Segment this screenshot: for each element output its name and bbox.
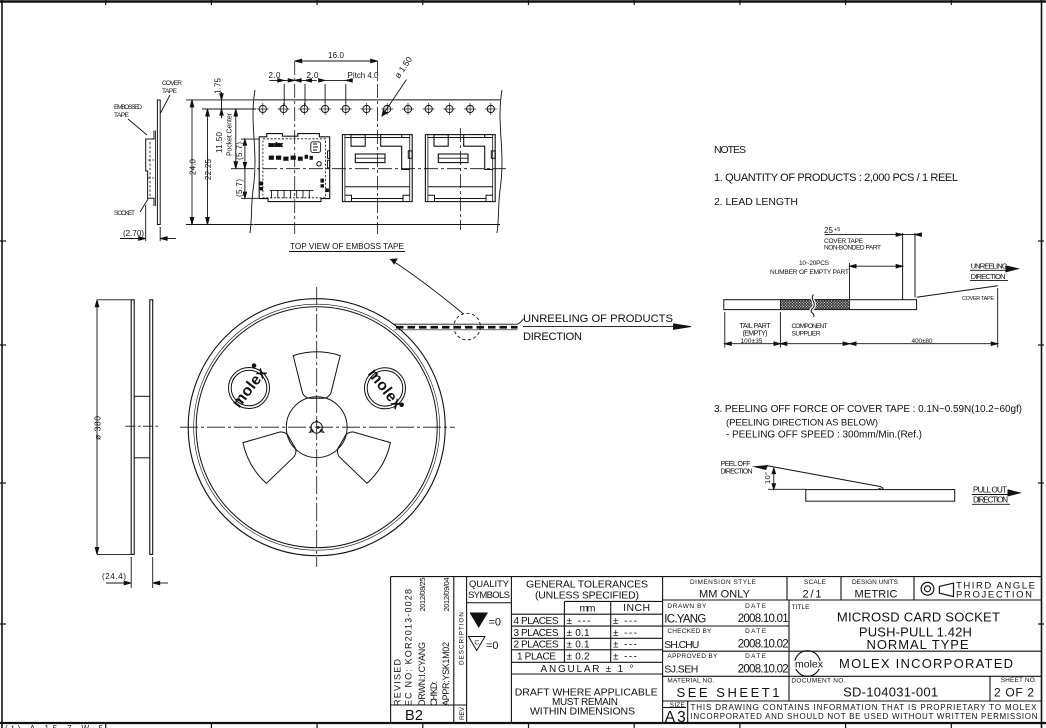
svg-text:± ---: ± --- bbox=[613, 628, 637, 639]
svg-text:24.0: 24.0 bbox=[189, 158, 198, 175]
svg-text:APPROVED BY: APPROVED BY bbox=[667, 653, 718, 660]
svg-text:molex: molex bbox=[269, 143, 284, 149]
svg-text:SCALE: SCALE bbox=[804, 579, 827, 586]
svg-text:EC NO: KOR2013-0028: EC NO: KOR2013-0028 bbox=[404, 589, 414, 706]
svg-text:B2: B2 bbox=[405, 708, 423, 724]
svg-text:METRIC: METRIC bbox=[855, 589, 898, 601]
svg-text:400±80: 400±80 bbox=[912, 338, 933, 345]
svg-text:C: C bbox=[474, 640, 479, 647]
svg-text:UNREELING OF PRODUCTS: UNREELING OF PRODUCTS bbox=[523, 313, 673, 325]
svg-text:2 OF 2: 2 OF 2 bbox=[994, 686, 1034, 700]
svg-text:TAPE: TAPE bbox=[114, 112, 130, 119]
svg-text:2008.10.02: 2008.10.02 bbox=[738, 664, 789, 676]
svg-text:SHEET NO.: SHEET NO. bbox=[1001, 677, 1037, 684]
svg-text:10°: 10° bbox=[763, 472, 772, 484]
svg-text:EMBOSSED: EMBOSSED bbox=[114, 104, 142, 111]
svg-text:TAIL PART: TAIL PART bbox=[740, 323, 772, 330]
svg-text:WITHIN DIMENSIONS: WITHIN DIMENSIONS bbox=[530, 706, 635, 718]
svg-text:=0: =0 bbox=[486, 640, 499, 652]
svg-text:(PEELING DIRECTION AS BELOW): (PEELING DIRECTION AS BELOW) bbox=[726, 418, 878, 429]
svg-text:(5.7): (5.7) bbox=[235, 142, 244, 160]
svg-text:± ---: ± --- bbox=[613, 616, 637, 627]
svg-text:MOLEX INCORPORATED: MOLEX INCORPORATED bbox=[839, 656, 1013, 671]
svg-text:DIRECTION: DIRECTION bbox=[721, 469, 753, 476]
svg-text:(2.70): (2.70) bbox=[123, 229, 144, 238]
svg-text:± ---: ± --- bbox=[567, 616, 591, 627]
svg-text:16.0: 16.0 bbox=[328, 51, 345, 60]
svg-text:2/1: 2/1 bbox=[803, 589, 822, 601]
svg-text:2012/08/25: 2012/08/25 bbox=[418, 578, 427, 612]
svg-text:2.0: 2.0 bbox=[269, 71, 282, 80]
svg-text:SUPPLIER: SUPPLIER bbox=[792, 331, 821, 338]
svg-text:NOTES: NOTES bbox=[714, 144, 746, 156]
svg-text:DATE: DATE bbox=[745, 628, 767, 635]
svg-text:SOCKET: SOCKET bbox=[114, 210, 135, 217]
svg-text:=0: =0 bbox=[489, 617, 502, 629]
svg-text:PULL OUT: PULL OUT bbox=[973, 486, 1007, 495]
svg-text:Pocket Center: Pocket Center bbox=[227, 112, 234, 156]
svg-text:SH.CHU: SH.CHU bbox=[664, 639, 699, 651]
svg-text:UNREELING: UNREELING bbox=[971, 262, 1008, 271]
svg-text:NORMAL TYPE: NORMAL TYPE bbox=[867, 637, 969, 652]
svg-text:DESCRIPTION: DESCRIPTION bbox=[459, 612, 466, 665]
svg-text:2 PLACES: 2 PLACES bbox=[514, 640, 559, 651]
svg-text:DIRECTION: DIRECTION bbox=[973, 496, 1008, 505]
svg-text:11.50: 11.50 bbox=[215, 131, 224, 153]
svg-text:CHECKED BY: CHECKED BY bbox=[667, 628, 712, 635]
svg-text:TOP VIEW OF EMBOSS TAPE: TOP VIEW OF EMBOSS TAPE bbox=[290, 242, 405, 251]
svg-text:IC.YANG: IC.YANG bbox=[664, 613, 706, 625]
svg-text:COMPONENT: COMPONENT bbox=[792, 323, 828, 330]
svg-text:MM ONLY: MM ONLY bbox=[699, 589, 751, 601]
svg-text:± 0.1: ± 0.1 bbox=[567, 628, 590, 639]
svg-text:1. QUANTITY OF PRODUCTS : 2,0: 1. QUANTITY OF PRODUCTS : 2,000 PCS / 1 … bbox=[714, 172, 958, 184]
svg-text:3 PLACES: 3 PLACES bbox=[514, 628, 559, 639]
svg-text:25: 25 bbox=[824, 226, 833, 235]
svg-text:DIRECTION: DIRECTION bbox=[523, 331, 582, 343]
svg-text:22.25: 22.25 bbox=[204, 158, 213, 180]
svg-text:mm: mm bbox=[580, 603, 596, 615]
svg-text:10~20PCS: 10~20PCS bbox=[799, 260, 830, 267]
svg-text:(UNLESS SPECIFIED): (UNLESS SPECIFIED) bbox=[535, 590, 639, 602]
svg-text:TITLE: TITLE bbox=[792, 604, 811, 611]
svg-text:ø 380: ø 380 bbox=[93, 416, 103, 440]
svg-text:DIMENSION STYLE: DIMENSION STYLE bbox=[690, 579, 757, 586]
svg-text:2.0: 2.0 bbox=[307, 71, 320, 80]
svg-text:DIRECTION: DIRECTION bbox=[971, 272, 1006, 281]
svg-text:DESIGN UNITS: DESIGN UNITS bbox=[852, 579, 899, 586]
svg-text:1.75: 1.75 bbox=[214, 77, 223, 94]
svg-text:2008.10.02: 2008.10.02 bbox=[738, 639, 789, 651]
svg-text:DRAWN BY: DRAWN BY bbox=[667, 603, 707, 610]
svg-text:SJ.SEH: SJ.SEH bbox=[664, 664, 698, 676]
svg-text:- PEELING OFF SPEED : 300mm/Mi: - PEELING OFF SPEED : 300mm/Min.(Ref.) bbox=[726, 430, 922, 441]
svg-text:THIS DRAWING CONTAINS INFORMAT: THIS DRAWING CONTAINS INFORMATION THAT I… bbox=[691, 703, 1038, 712]
svg-text:ANGULAR ± 1 °: ANGULAR ± 1 ° bbox=[541, 664, 634, 675]
svg-text:COVER TAPE: COVER TAPE bbox=[962, 296, 994, 302]
svg-text:DATE: DATE bbox=[745, 653, 767, 660]
svg-text:± ---: ± --- bbox=[613, 652, 637, 663]
svg-text:1 PLACE: 1 PLACE bbox=[517, 652, 556, 663]
svg-text:INCH: INCH bbox=[623, 602, 650, 614]
svg-text:+5: +5 bbox=[834, 227, 840, 233]
svg-text:ø 1.50: ø 1.50 bbox=[392, 54, 414, 80]
svg-text:DRWN:I.CYANG: DRWN:I.CYANG bbox=[417, 642, 427, 706]
svg-text:DOCUMENT NO.: DOCUMENT NO. bbox=[791, 678, 845, 685]
svg-text:MATERIAL NO.: MATERIAL NO. bbox=[667, 677, 714, 684]
svg-text:NUMBER OF EMPTY PART: NUMBER OF EMPTY PART bbox=[770, 269, 849, 276]
svg-text:SYMBOLS: SYMBOLS bbox=[468, 590, 510, 601]
svg-text:CH'KD:: CH'KD: bbox=[429, 681, 439, 706]
svg-text:± ---: ± --- bbox=[613, 640, 637, 651]
svg-text:2012/09/04: 2012/09/04 bbox=[442, 578, 451, 612]
svg-text:(24.4): (24.4) bbox=[102, 572, 126, 581]
svg-text:molex: molex bbox=[229, 364, 271, 411]
svg-text:NON-BONDED PART: NON-BONDED PART bbox=[824, 245, 881, 252]
svg-text:MICROSD CARD SOCKET: MICROSD CARD SOCKET bbox=[837, 610, 1000, 625]
svg-text:4 PLACES: 4 PLACES bbox=[514, 616, 559, 627]
svg-text:(5.7): (5.7) bbox=[235, 179, 244, 197]
svg-text:± 0.1: ± 0.1 bbox=[567, 640, 590, 651]
svg-text:2. LEAD LENGTH: 2. LEAD LENGTH bbox=[714, 196, 798, 208]
svg-text:(EMPTY): (EMPTY) bbox=[743, 331, 768, 338]
svg-text:REV: REV bbox=[459, 706, 466, 720]
svg-text:molex: molex bbox=[795, 659, 824, 671]
svg-text:± 0.2: ± 0.2 bbox=[567, 652, 590, 663]
svg-text:TAPE: TAPE bbox=[162, 88, 178, 95]
svg-text:Pitch 4.0: Pitch 4.0 bbox=[348, 71, 380, 80]
svg-text:QUALITY: QUALITY bbox=[469, 579, 510, 590]
svg-text:SEE SHEET1: SEE SHEET1 bbox=[677, 685, 780, 700]
svg-text:SIZE: SIZE bbox=[670, 702, 686, 709]
svg-text:DATE: DATE bbox=[745, 603, 767, 610]
svg-text:PEEL OFF: PEEL OFF bbox=[721, 461, 751, 468]
svg-text:2008.10.01: 2008.10.01 bbox=[738, 613, 789, 625]
svg-text:REVISED: REVISED bbox=[393, 659, 403, 707]
svg-text:COVER: COVER bbox=[162, 80, 182, 87]
svg-text:100±35: 100±35 bbox=[741, 338, 763, 345]
svg-text:3. PEELING OFF FORCE OF COVER: 3. PEELING OFF FORCE OF COVER TAPE : 0.1… bbox=[714, 404, 1022, 415]
svg-text:SD-104031-001: SD-104031-001 bbox=[843, 685, 938, 700]
svg-text:APPR:YSK1M02: APPR:YSK1M02 bbox=[441, 642, 451, 706]
svg-text:PROJECTION: PROJECTION bbox=[956, 590, 1032, 601]
svg-text:(t) A 15.7 W.5: (t) A 15.7 W.5 bbox=[5, 724, 104, 728]
svg-text:INCORPORATED AND SHOULD NOT BE: INCORPORATED AND SHOULD NOT BE USED WITH… bbox=[691, 712, 1038, 721]
